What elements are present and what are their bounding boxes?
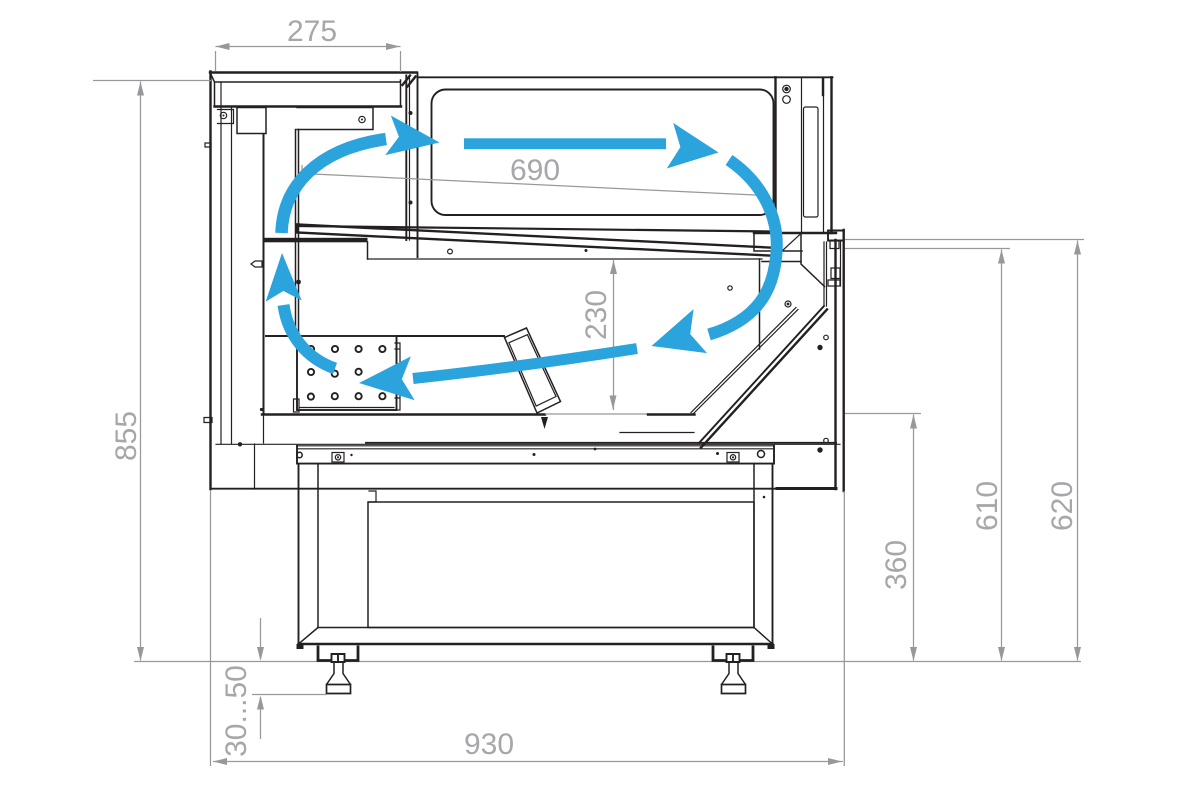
svg-text:230: 230	[580, 290, 613, 340]
svg-text:855: 855	[110, 411, 143, 461]
svg-text:360: 360	[880, 540, 913, 590]
svg-text:275: 275	[287, 15, 337, 48]
svg-text:690: 690	[510, 154, 560, 187]
svg-text:620: 620	[1046, 481, 1079, 531]
svg-text:610: 610	[971, 481, 1004, 531]
svg-text:30...50: 30...50	[220, 665, 253, 757]
svg-text:930: 930	[464, 728, 514, 761]
